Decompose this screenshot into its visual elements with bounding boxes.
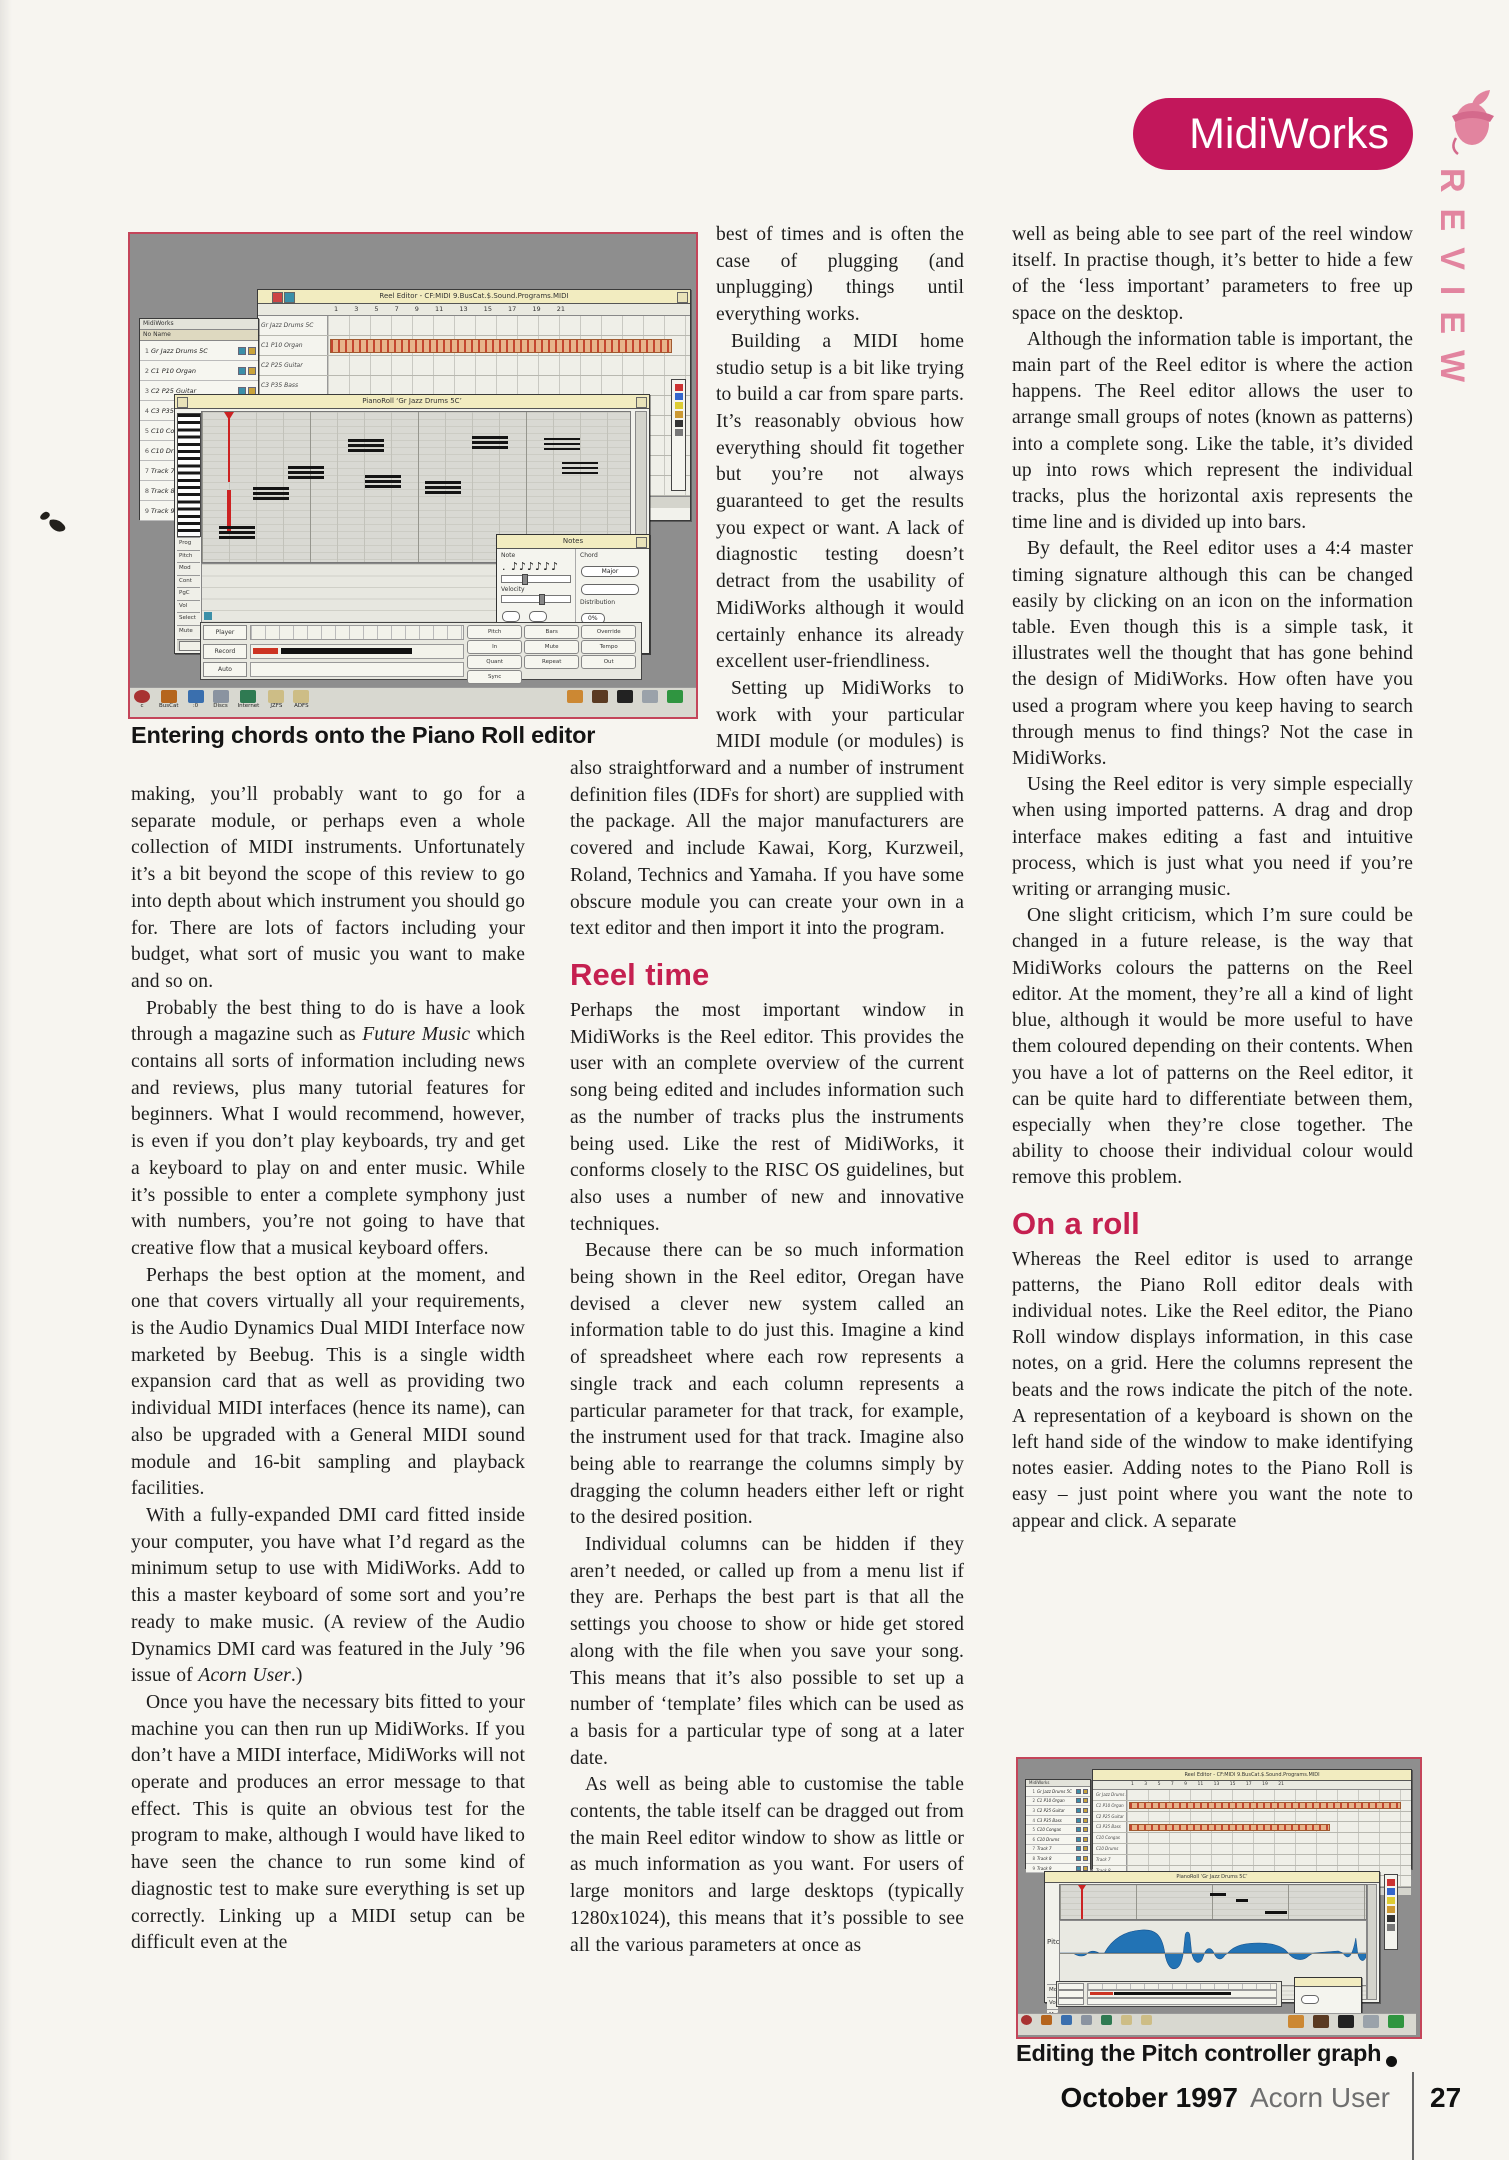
transport-displays (1087, 1983, 1277, 2005)
reel-track-lane: C2 P25 Guitar (1093, 1812, 1411, 1823)
reel-track-lane: C10 Drums (1093, 1844, 1411, 1855)
jzfs-icon (1121, 2015, 1132, 2025)
page-edge-shadow (0, 0, 12, 2160)
chord-note-group (425, 481, 461, 497)
reel-track-lane: Track 7 (1093, 1855, 1411, 1866)
badge-label: MidiWorks (1189, 110, 1389, 159)
note-grid-small (1059, 1884, 1367, 1920)
section-heading: Reel time (570, 959, 964, 991)
body-paragraph: Although the information table is import… (1012, 327, 1413, 537)
micro-label: Pitch (177, 550, 200, 563)
tool-mark-icon (1387, 1915, 1395, 1922)
tool-mark-icon (1387, 1888, 1395, 1895)
section-badge: MidiWorks (1133, 98, 1413, 170)
small-dialog-button (1301, 1995, 1319, 2004)
ink-speck (34, 506, 76, 541)
buscat-icon (1041, 2015, 1052, 2025)
window-toggle-icon (177, 397, 188, 408)
transport-bar-small (1056, 1981, 1282, 2007)
velocity-slider (501, 595, 571, 603)
risc-os-icon-bar (1018, 2013, 1416, 2035)
micro-label: Auto (203, 662, 247, 677)
acorn-logo-icon (1446, 86, 1500, 161)
body-paragraph: Individual columns can be hidden if they… (570, 1532, 964, 1772)
pitch-zero-line (1060, 1953, 1366, 1954)
magazine-page: MidiWorks REVIEW Reel Editor - CF:MIDI 9… (0, 0, 1509, 2160)
track-row: 3C2 P25 Guitar (1026, 1806, 1090, 1816)
body-paragraph: By default, the Reel editor uses a 4:4 m… (1012, 536, 1413, 772)
tool-mark-icon (1387, 1924, 1395, 1931)
micro-label: PgC (177, 587, 200, 600)
text-wrap-spacer (570, 222, 716, 749)
velocity-value-box2 (529, 611, 547, 622)
small-dialog-title (1295, 1978, 1361, 1987)
transport-row-labels: PlayerRecordAuto (203, 625, 247, 677)
transport-displays (250, 625, 464, 677)
figure1-caption: Entering chords onto the Piano Roll edit… (131, 722, 595, 749)
page-number: 27 (1430, 2082, 1461, 2114)
piano-keyboard (177, 413, 201, 537)
adfs-icon: ADFS (293, 690, 309, 710)
adfs-icon (1141, 2015, 1152, 2025)
pattern-strip (1129, 1802, 1401, 1809)
info-table-rows: 1Gr Jazz Drums 5C2C1 P10 Organ3C2 P25 Gu… (1026, 1787, 1090, 1873)
small-dialog (1294, 1977, 1362, 2015)
apple-drive-icon (1021, 2015, 1032, 2025)
track-row: 1Gr Jazz Drums 5C (140, 341, 258, 361)
icon-bar-left-items (1041, 2015, 1161, 2025)
chord-note-group (472, 436, 508, 452)
track-row: 2C1 P10 Organ (1026, 1797, 1090, 1807)
chord-note-group (365, 475, 401, 491)
micro-label: Mute (177, 625, 200, 638)
pitch-window-title-bar: PianoRoll ‘Gr Jazz Drums 5C’ (1045, 1872, 1379, 1883)
-0-icon (1061, 2015, 1072, 2025)
micro-label: Record (203, 644, 247, 659)
app-icon (1338, 2015, 1354, 2028)
transport-pattern-cells (250, 625, 464, 640)
icon-bar-left-items: BusCat:0DiscsInternetJZFSADFS (159, 690, 318, 710)
body-paragraph: As well as being able to customise the t… (570, 1772, 964, 1959)
reel-track-lane: C3 P35 Bass (1093, 1822, 1411, 1833)
track-row: 4C3 P35 Bass (1026, 1816, 1090, 1826)
note-length-slider (501, 575, 571, 583)
body-paragraph: Because there can be so much information… (570, 1238, 964, 1532)
playhead-line (1081, 1885, 1083, 1919)
discs-icon (1081, 2015, 1092, 2025)
window-close-icon (272, 292, 283, 303)
reel-track-lane: Gr Jazz Drums 5C (1093, 1790, 1411, 1801)
body-paragraph: making, you’ll probably want to go for a… (131, 782, 525, 996)
pitch-v-scrollbar (1367, 1884, 1377, 2000)
text-column-2: best of times and is often the case of p… (570, 222, 964, 1959)
internet-icon (1101, 2015, 1112, 2025)
review-vertical-label: REVIEW (1432, 168, 1471, 488)
transport-field (250, 662, 464, 677)
track-row: 7Track 7 (1026, 1845, 1090, 1855)
figure2-caption: Editing the Pitch controller graph (1016, 2040, 1381, 2067)
screenshot-pitch-graph: Reel Editor - CF:MIDI 9.BusCat.$.Sound.P… (1016, 1757, 1422, 2039)
micro-label: Pitch (467, 625, 522, 639)
icon-bar-right-items (1288, 2015, 1413, 2028)
bar-number-ruler: 1 3 5 7 9 11 13 15 17 19 21 (1093, 1781, 1411, 1790)
reel-track-lane: C10 Congas (1093, 1833, 1411, 1844)
tool-mark-icon (1387, 1879, 1395, 1886)
note-section-label: Note (501, 552, 575, 559)
edit-tool-strip (1384, 1874, 1398, 1950)
playhead-line (228, 412, 230, 482)
velocity-value-box (502, 611, 520, 622)
footer-bullet (1386, 2056, 1397, 2067)
body-paragraph: well as being able to see part of the re… (1012, 222, 1413, 327)
body-paragraph: Perhaps the most important window in Mid… (570, 998, 964, 1238)
chord-note-group (219, 526, 255, 542)
footer-issue-line: October 1997Acorn User (1061, 2082, 1390, 2114)
reel-editor-window-small: Reel Editor - CF:MIDI 9.BusCat.$.Sound.P… (1092, 1769, 1412, 1869)
app-icon (1313, 2015, 1329, 2028)
body-paragraph: Perhaps the best option at the moment, a… (131, 1263, 525, 1503)
body-paragraph: One slight criticism, which I’m sure cou… (1012, 903, 1413, 1191)
info-table-title: MidiWorks (140, 319, 258, 330)
window-marker-icon (284, 292, 295, 303)
pattern-strip (1129, 1824, 1330, 1831)
body-paragraph: With a fully-expanded DMI card fitted in… (131, 1503, 525, 1690)
internet-icon: Internet (238, 690, 260, 710)
micro-label: Vol (177, 600, 200, 613)
footer-magazine-name: Acorn User (1250, 2082, 1390, 2113)
reel-window-title: Reel Editor - CF:MIDI 9.BusCat.$.Sound.P… (1184, 1772, 1319, 1778)
note-bar (1265, 1911, 1287, 1914)
text-column-3: well as being able to see part of the re… (1012, 222, 1413, 1535)
footer-issue-date: October 1997 (1061, 2082, 1238, 2113)
chord-note-group (253, 487, 289, 503)
track-row: 5C10 Congas (1026, 1825, 1090, 1835)
reel-window-title: Reel Editor - CF:MIDI 9.BusCat.$.Sound.P… (379, 292, 568, 300)
note-bar (1210, 1893, 1226, 1896)
pitch-window-title: PianoRoll ‘Gr Jazz Drums 5C’ (1176, 1874, 1247, 1880)
apple-drive-icon: c (134, 690, 150, 710)
body-paragraph: Using the Reel editor is very simple esp… (1012, 772, 1413, 903)
micro-label: Player (203, 625, 247, 640)
section-heading: On a roll (1012, 1208, 1413, 1240)
buscat-icon: BusCat (159, 690, 179, 710)
reel-title-bar: Reel Editor - CF:MIDI 9.BusCat.$.Sound.P… (1093, 1770, 1411, 1781)
footer-divider (1412, 2072, 1414, 2160)
micro-label: Quant (467, 655, 522, 669)
chord-note-group (288, 466, 324, 482)
controller-chip (204, 612, 212, 620)
reel-track-lane: C1 P10 Organ (1093, 1801, 1411, 1812)
track-row: 8Track 8 (1026, 1854, 1090, 1864)
app-icon (1388, 2015, 1404, 2028)
note-duration-glyphs: . ♪♪♪♪♪♪ (502, 560, 575, 573)
micro-label: Select (177, 612, 200, 625)
app-icon (1363, 2015, 1379, 2028)
text-column-1: making, you’ll probably want to go for a… (131, 782, 525, 1957)
piano-roll-title: PianoRoll ‘Gr Jazz Drums 5C’ (362, 397, 462, 405)
tool-mark-icon (1387, 1906, 1395, 1913)
micro-label: Prog (177, 537, 200, 550)
-0-icon: :0 (188, 690, 204, 710)
micro-label: Mod (177, 562, 200, 575)
body-paragraph: Once you have the necessary bits fitted … (131, 1690, 525, 1957)
track-row: 1Gr Jazz Drums 5C (1026, 1787, 1090, 1797)
micro-label: In (467, 640, 522, 654)
tool-mark-icon (1387, 1897, 1395, 1904)
micro-label: Sync (467, 670, 522, 684)
app-icon (1288, 2015, 1304, 2028)
controller-labels: ProgPitchModContPgCVolSelectMute (177, 537, 200, 637)
information-table-window-small: MidiWorks 1Gr Jazz Drums 5C2C1 P10 Organ… (1025, 1779, 1091, 1869)
micro-label: Cont (177, 575, 200, 588)
info-table-header: No Name (140, 330, 258, 341)
track-row: 6C10 Drums (1026, 1835, 1090, 1845)
note-bar (1236, 1899, 1248, 1902)
track-row: 2C1 P10 Organ (140, 361, 258, 381)
info-table-title: MidiWorks (1026, 1780, 1090, 1787)
velocity-label: Velocity (501, 586, 575, 593)
body-paragraph: Probably the best thing to do is have a … (131, 996, 525, 1263)
discs-icon: Discs (213, 690, 229, 710)
transport-row-labels (1058, 1983, 1084, 2005)
transport-progress (250, 644, 464, 659)
body-paragraph: Whereas the Reel editor is used to arran… (1012, 1247, 1413, 1535)
chord-note-group (348, 439, 384, 455)
jzfs-icon: JZFS (268, 690, 284, 710)
